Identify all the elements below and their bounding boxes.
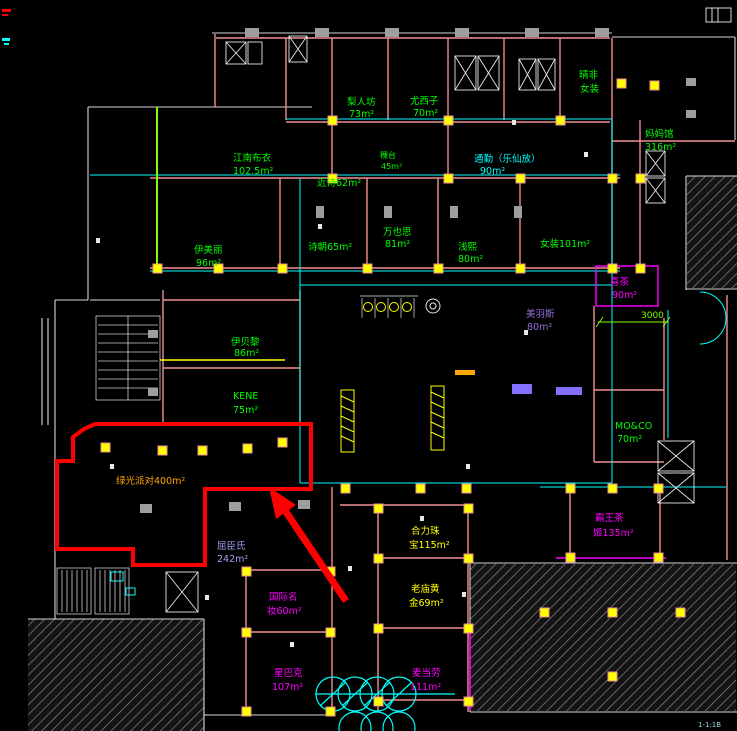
- shop-label: 诗朝65m²: [308, 242, 352, 253]
- shop-label: 妈妈馆: [645, 128, 674, 140]
- shop-area: 姬135m²: [593, 527, 634, 539]
- shop-label: 晴非: [579, 69, 599, 81]
- shop-area: 242m²: [217, 554, 248, 565]
- shop-label: 喜茶: [610, 276, 630, 288]
- shop-label: 万也思: [383, 226, 412, 238]
- shop-area: 107m²: [272, 682, 303, 693]
- shop-label: 星巴克: [274, 668, 303, 679]
- shop-label: 尤西子: [410, 95, 439, 107]
- shop-label: 合力珠: [411, 525, 440, 537]
- escalator-symbols: [341, 386, 444, 452]
- shop-label: 屈臣氏: [217, 541, 246, 552]
- shop-area: 111m²: [410, 682, 441, 693]
- floorplan-drawing: 梨人坊 73m² 尤西子 70m² 通勤（乐仙放） 90m² 晴非 女装 妈妈馆…: [0, 0, 737, 731]
- shop-label: 稞台: [380, 150, 396, 160]
- highlight-region-label: 绿光派对400m²: [116, 475, 185, 487]
- shop-area: 80m²: [527, 322, 552, 333]
- shop-label: 美羽斯: [526, 308, 555, 320]
- shop-label: 霸王茶: [595, 512, 624, 524]
- shop-area: 75m²: [233, 405, 258, 416]
- shop-label: KENE: [233, 391, 258, 402]
- shop-area: 96m²: [196, 258, 221, 269]
- shop-label: 近诗62m²: [317, 177, 361, 189]
- shop-label: 梨人坊: [347, 96, 376, 108]
- north-symbol-icon: [706, 8, 731, 22]
- shop-label: 伊美丽: [194, 244, 223, 256]
- shop-label: 浅熙: [458, 241, 478, 253]
- shop-area: 86m²: [234, 348, 259, 359]
- shop-area: 73m²: [349, 109, 374, 120]
- corner-marks: [2, 8, 731, 45]
- shop-label: 麦当劳: [412, 667, 441, 679]
- shop-area: 金69m²: [409, 597, 444, 609]
- shop-area: 80m²: [458, 254, 483, 265]
- cad-floorplan-canvas: 梨人坊 73m² 尤西子 70m² 通勤（乐仙放） 90m² 晴非 女装 妈妈馆…: [0, 0, 737, 731]
- drawing-corner-note: 1-1:1B: [698, 721, 721, 729]
- shop-label: 国际名: [269, 591, 298, 603]
- shop-area: 102.5m²: [233, 166, 273, 177]
- shop-label: 女装101m²: [540, 238, 590, 250]
- shop-label: 伊贝黎: [231, 336, 260, 348]
- shop-area: 女装: [580, 83, 600, 95]
- dimension-text: 3000: [641, 311, 664, 321]
- shop-area: 316m²: [645, 142, 676, 153]
- shop-label: 老庙黄: [411, 583, 440, 595]
- shop-area: 90m²: [612, 290, 637, 301]
- shop-area: 宝115m²: [409, 539, 450, 551]
- shop-area: 90m²: [480, 166, 505, 177]
- storefront-lines: [90, 119, 726, 595]
- shop-label: MO&CO: [615, 421, 652, 432]
- shop-area: 70m²: [617, 434, 642, 445]
- shop-label: 江南布衣: [233, 152, 272, 164]
- shop-area: 70m²: [413, 108, 438, 119]
- shop-label: 通勤（乐仙放）: [474, 153, 541, 165]
- shop-area: 妆60m²: [267, 605, 302, 617]
- stair-symbols: [57, 316, 160, 614]
- hatched-zones: [28, 176, 737, 731]
- shop-area: 45m²: [381, 162, 402, 171]
- shop-area: 81m²: [385, 239, 410, 250]
